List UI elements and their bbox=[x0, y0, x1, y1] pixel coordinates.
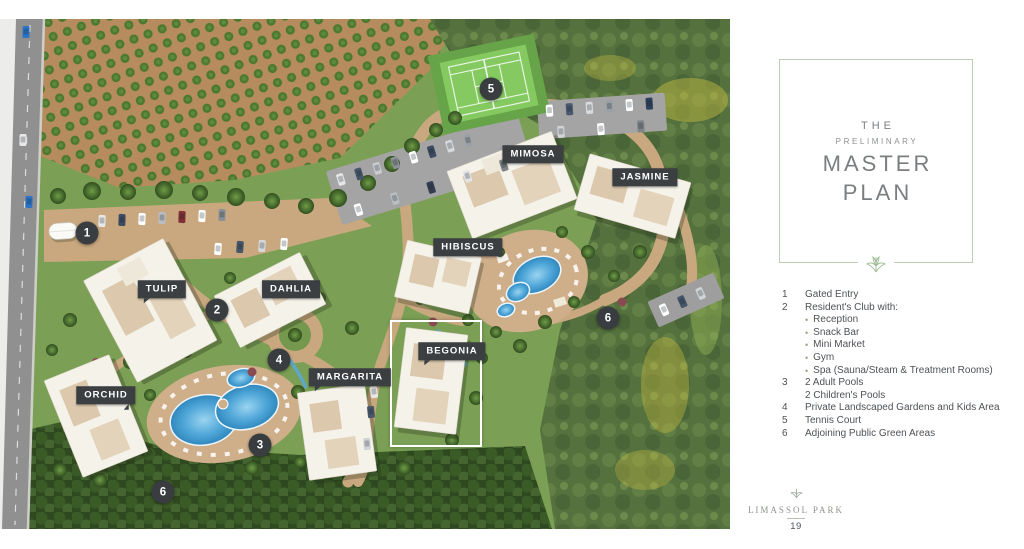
map-marker-gated-entry: 1 bbox=[76, 222, 99, 245]
brand-name: LIMASSOL PARK bbox=[726, 505, 866, 515]
title-master: MASTER bbox=[780, 151, 972, 177]
legend-item: 32 Adult Pools bbox=[782, 377, 1020, 390]
building-margarita bbox=[297, 383, 381, 485]
legend-subitem: •Snack Bar bbox=[782, 327, 1020, 340]
title-plan: PLAN bbox=[780, 180, 972, 206]
legend-subitem: •Gym bbox=[782, 352, 1020, 365]
map-marker-green-areas-east: 6 bbox=[597, 307, 620, 330]
title-the: THE bbox=[780, 120, 972, 132]
building-label-mimosa: MIMOSA bbox=[502, 145, 563, 163]
bullet-icon: • bbox=[805, 365, 808, 378]
bullet-icon: • bbox=[805, 339, 808, 352]
legend-item: 6Adjoining Public Green Areas bbox=[782, 428, 1020, 441]
building-label-margarita: MARGARITA bbox=[309, 368, 391, 386]
legend-item: 4Private Landscaped Gardens and Kids Are… bbox=[782, 402, 1020, 415]
brand-footer: LIMASSOL PARK 19 bbox=[726, 486, 866, 532]
master-plan-map: MIMOSA JASMINE HIBISCUS TULIP DAHLIA BEG… bbox=[0, 19, 730, 529]
legend-item: 2Resident's Club with: bbox=[782, 302, 1020, 315]
building-label-orchid: ORCHID bbox=[76, 386, 135, 404]
brand-leaf-icon bbox=[789, 486, 804, 503]
begonia-highlight-box bbox=[390, 320, 482, 447]
title-preliminary: PRELIMINARY bbox=[780, 137, 972, 146]
footer-divider bbox=[787, 518, 805, 519]
building-label-hibiscus: HIBISCUS bbox=[433, 238, 502, 256]
gated-entry-canopy bbox=[48, 222, 78, 243]
bullet-icon: • bbox=[805, 314, 808, 327]
legend-item: 1Gated Entry bbox=[782, 289, 1020, 302]
info-panel: THE PRELIMINARY MASTER PLAN 1Gated Entry… bbox=[730, 0, 1024, 549]
page-number: 19 bbox=[726, 521, 866, 532]
map-marker-green-areas-south: 6 bbox=[152, 481, 175, 504]
building-label-jasmine: JASMINE bbox=[612, 168, 677, 186]
map-marker-gardens: 4 bbox=[268, 349, 291, 372]
map-marker-pools: 3 bbox=[249, 434, 272, 457]
legend-item: 2 Children's Pools bbox=[782, 390, 1020, 403]
legend-subitem: •Mini Market bbox=[782, 339, 1020, 352]
title-box: THE PRELIMINARY MASTER PLAN bbox=[779, 59, 973, 263]
legend-list: 1Gated Entry 2Resident's Club with: •Rec… bbox=[782, 289, 1020, 440]
legend-subitem: •Spa (Sauna/Steam & Treatment Rooms) bbox=[782, 365, 1020, 378]
legend-subitem: •Reception bbox=[782, 314, 1020, 327]
leaf-ornament-icon bbox=[858, 254, 894, 274]
bullet-icon: • bbox=[805, 352, 808, 365]
building-label-dahlia: DAHLIA bbox=[262, 280, 320, 298]
building-label-tulip: TULIP bbox=[138, 280, 186, 298]
map-marker-tennis-court: 5 bbox=[480, 78, 503, 101]
building-label-begonia: BEGONIA bbox=[418, 342, 485, 360]
bullet-icon: • bbox=[805, 327, 808, 340]
master-plan-page: MIMOSA JASMINE HIBISCUS TULIP DAHLIA BEG… bbox=[0, 0, 1024, 549]
legend-item: 5Tennis Court bbox=[782, 415, 1020, 428]
site-aerial-rendering bbox=[0, 19, 730, 529]
map-marker-residents-club: 2 bbox=[206, 299, 229, 322]
